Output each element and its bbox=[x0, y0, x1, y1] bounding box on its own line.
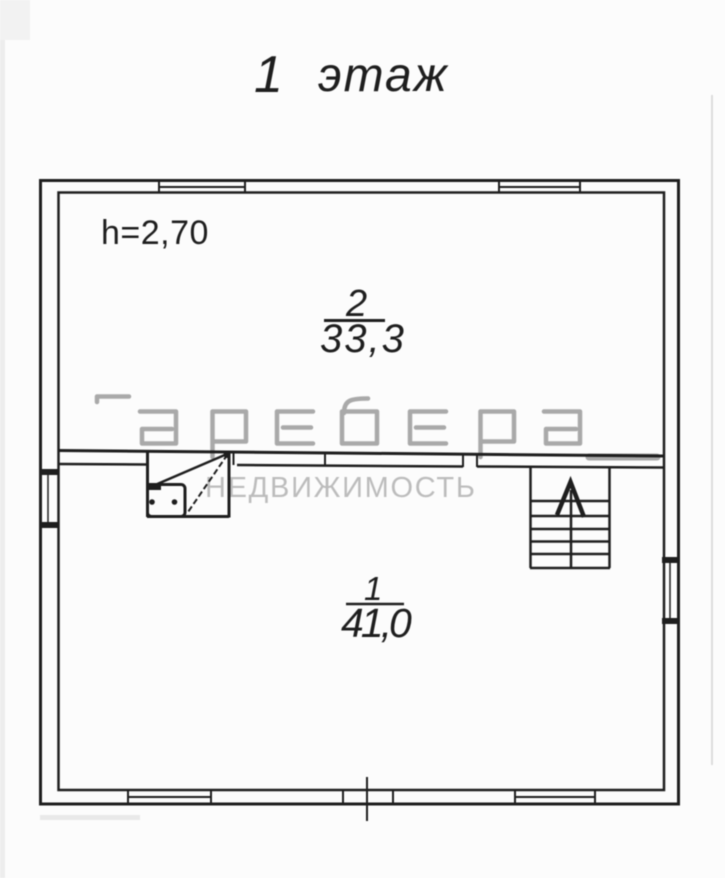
svg-text:НЕДВИЖИМОСТЬ: НЕДВИЖИМОСТЬ bbox=[205, 472, 477, 504]
svg-text:41,0: 41,0 bbox=[341, 600, 412, 646]
svg-text:33,3: 33,3 bbox=[320, 317, 406, 361]
svg-text:этаж: этаж bbox=[318, 49, 449, 102]
svg-text:h=2,70: h=2,70 bbox=[101, 214, 209, 252]
svg-text:1: 1 bbox=[254, 46, 283, 104]
